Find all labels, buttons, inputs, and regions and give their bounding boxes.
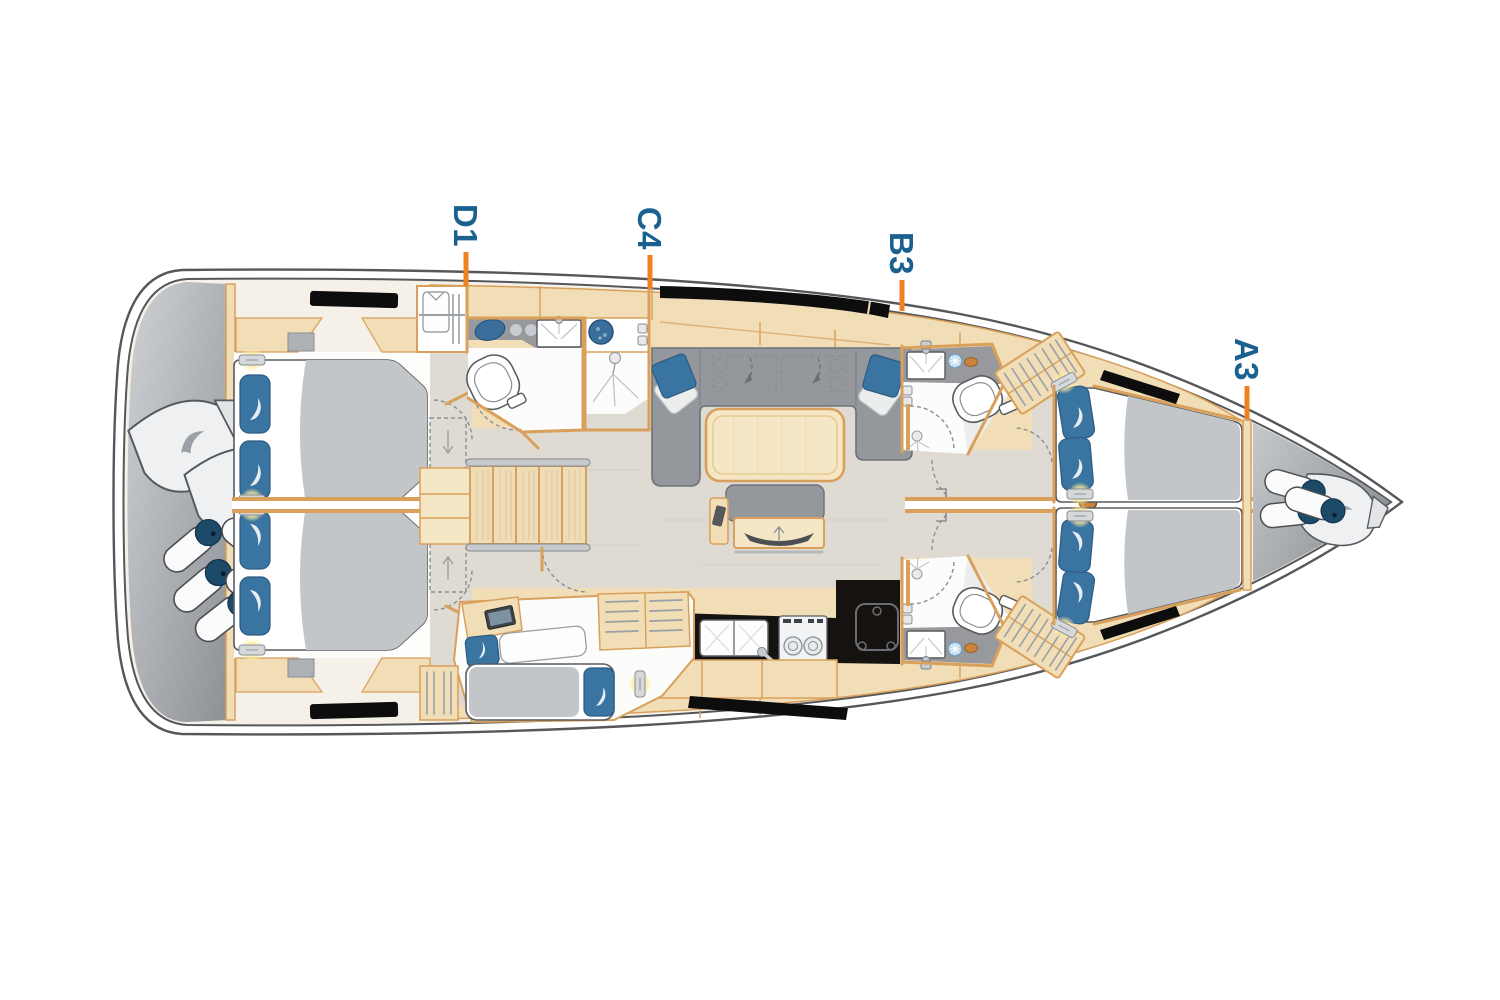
sink <box>537 317 581 348</box>
option-label-b3[interactable]: B3 <box>883 232 920 311</box>
option-label-b3-text: B3 <box>883 232 920 275</box>
washing-machine-icon <box>589 320 613 344</box>
option-label-c4-text: C4 <box>631 207 668 250</box>
companionway-stairs <box>420 459 590 551</box>
door-leaf <box>906 404 910 450</box>
yacht-layout-figure: D1 C4 B3 A3 <box>0 0 1500 1000</box>
collision-bulkhead <box>1243 420 1251 590</box>
handrail <box>466 544 590 551</box>
soap-icon <box>965 358 978 367</box>
island-seat <box>710 485 824 552</box>
option-label-d1-text: D1 <box>447 204 484 247</box>
saloon-table <box>706 409 844 481</box>
hatch <box>288 333 314 351</box>
option-label-a3-text: A3 <box>1228 338 1265 381</box>
bow-locker <box>1253 423 1392 581</box>
stove <box>779 616 827 662</box>
deck-plan: D1 C4 B3 A3 <box>0 0 1500 1000</box>
option-label-c4[interactable]: C4 <box>631 207 668 289</box>
wardrobe <box>417 286 467 352</box>
handrail <box>466 459 590 466</box>
slatted-locker <box>420 666 458 720</box>
hull-window <box>310 291 398 308</box>
duvet <box>300 360 427 504</box>
